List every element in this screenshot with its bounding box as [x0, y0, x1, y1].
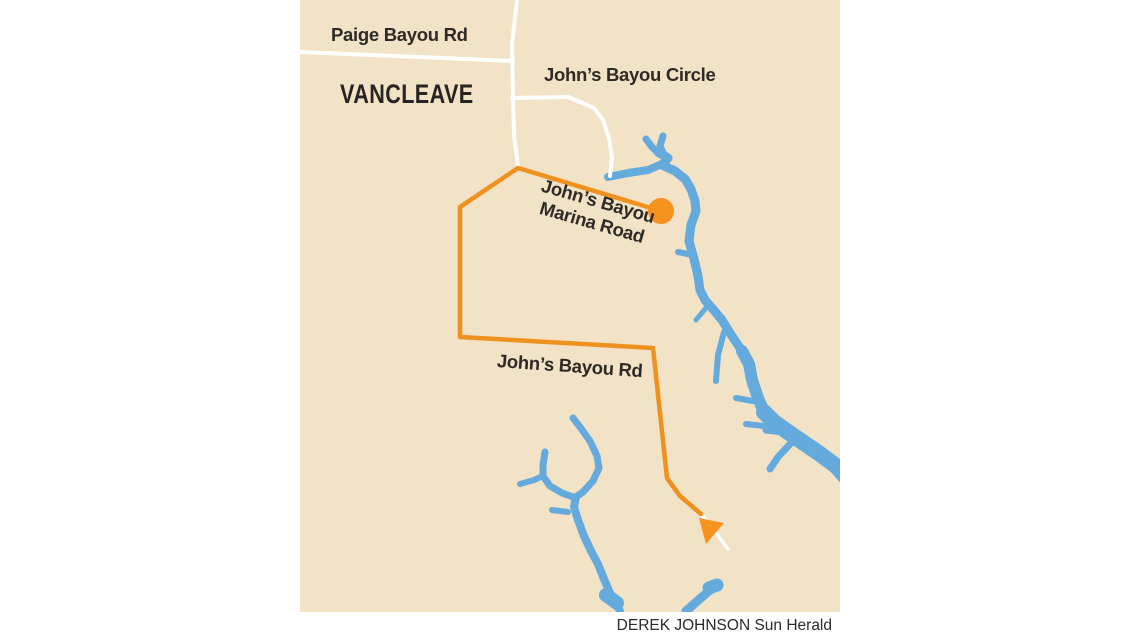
south-creek-head — [709, 585, 717, 588]
bayou-stub-2 — [736, 398, 753, 401]
west-bayou-stub — [552, 510, 568, 512]
bayou-branch-low-left — [766, 430, 790, 433]
graphic-credit: DEREK JOHNSON Sun Herald — [617, 617, 832, 635]
news-map-graphic: Paige Bayou Rd VANCLEAVE John’s Bayou Ci… — [0, 0, 1140, 641]
bayou-fork-prong-right — [660, 136, 664, 155]
paige-bayou-rd-label: Paige Bayou Rd — [331, 24, 468, 46]
map-canvas: Paige Bayou Rd VANCLEAVE John’s Bayou Ci… — [300, 0, 840, 612]
bayou-stub-3 — [746, 424, 764, 426]
johns-bayou-circle-label: John’s Bayou Circle — [544, 64, 715, 86]
bayou-stub-1 — [678, 252, 693, 255]
west-bayou-bottom-pool — [606, 595, 617, 603]
vancleave-town-label: VANCLEAVE — [340, 79, 474, 110]
